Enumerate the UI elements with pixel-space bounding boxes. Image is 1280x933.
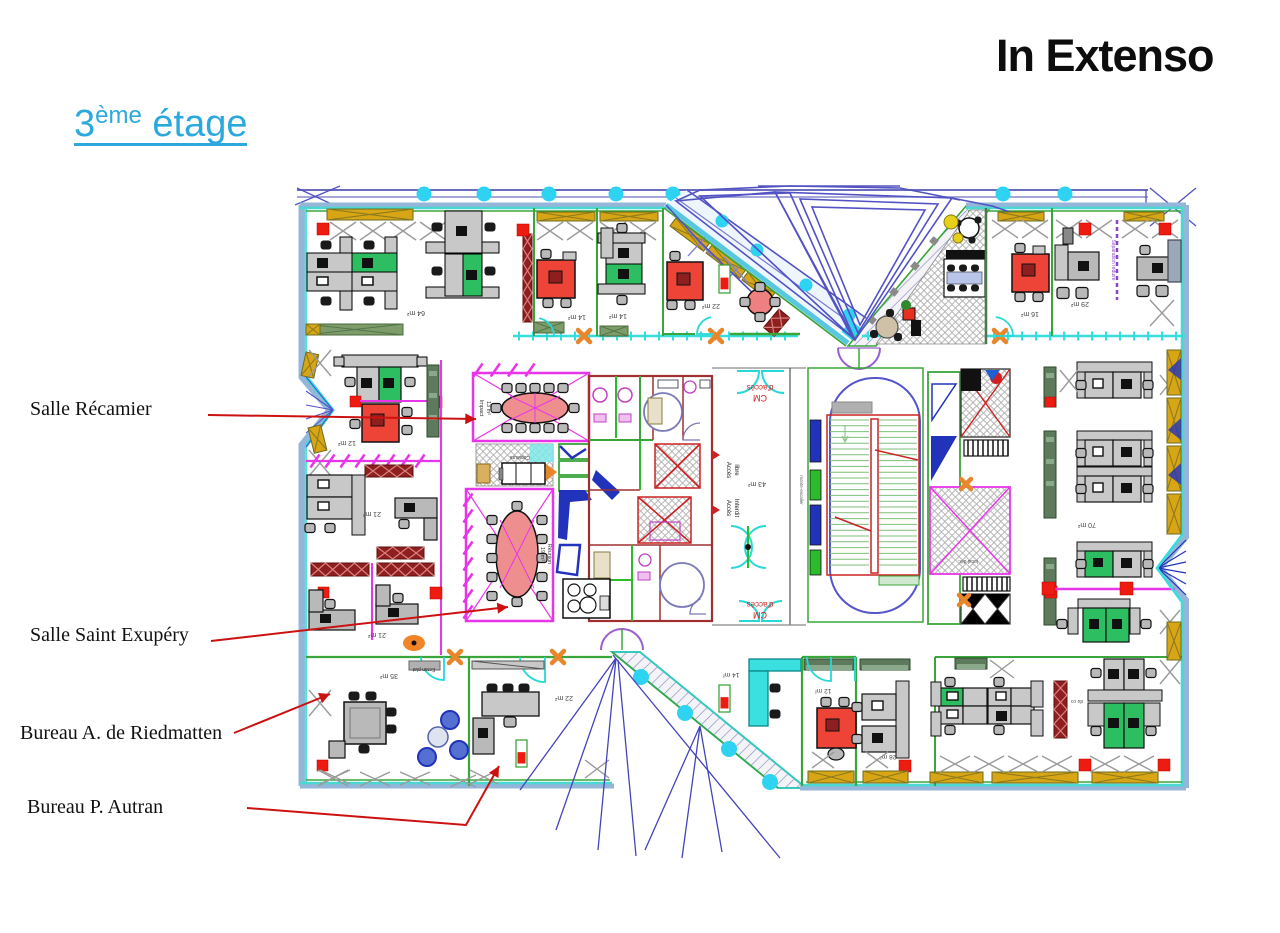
svg-text:12 m²: 12 m²: [337, 439, 356, 446]
svg-text:16 m²: 16 m²: [1020, 310, 1039, 317]
svg-text:14 m²: 14 m²: [608, 312, 627, 319]
svg-text:monte-escalier: monte-escalier: [799, 475, 804, 505]
svg-text:du co: du co: [1071, 698, 1083, 704]
svg-text:35 m²: 35 m²: [379, 672, 398, 679]
svg-text:19 m²: 19 m²: [539, 547, 545, 561]
svg-text:CM: CM: [753, 610, 767, 620]
svg-text:d'accès: d'accès: [747, 383, 774, 392]
svg-text:43 m²: 43 m²: [747, 480, 766, 487]
svg-text:Accès: Accès: [725, 500, 731, 516]
svg-text:Réunion: Réunion: [546, 544, 552, 565]
svg-text:Interdit: Interdit: [733, 499, 739, 518]
svg-text:22 m²: 22 m²: [554, 694, 573, 701]
svg-text:21 m²: 21 m²: [367, 631, 386, 638]
svg-text:70 m²: 70 m²: [1077, 521, 1096, 528]
svg-text:Impact: Impact: [478, 400, 484, 417]
svg-text:13 m²: 13 m²: [485, 401, 491, 415]
svg-text:21 m²: 21 m²: [362, 510, 381, 517]
svg-text:22 m²: 22 m²: [701, 302, 720, 309]
svg-text:12 m²: 12 m²: [814, 687, 831, 694]
svg-text:64 m²: 64 m²: [406, 309, 425, 316]
svg-text:Séparation réduire: Séparation réduire: [1110, 239, 1116, 280]
svg-text:14 m²: 14 m²: [567, 313, 586, 320]
svg-text:Copieurs: Copieurs: [509, 454, 530, 460]
svg-text:Écran plat: Écran plat: [412, 666, 435, 673]
svg-text:libre: libre: [733, 464, 739, 476]
svg-text:29 m²: 29 m²: [1070, 300, 1089, 307]
svg-text:CM: CM: [753, 393, 767, 403]
svg-text:d'accès: d'accès: [747, 600, 774, 609]
svg-text:14 m²: 14 m²: [722, 671, 739, 678]
svg-text:local dét.: local dét.: [958, 558, 978, 564]
svg-text:Accès: Accès: [725, 462, 731, 478]
